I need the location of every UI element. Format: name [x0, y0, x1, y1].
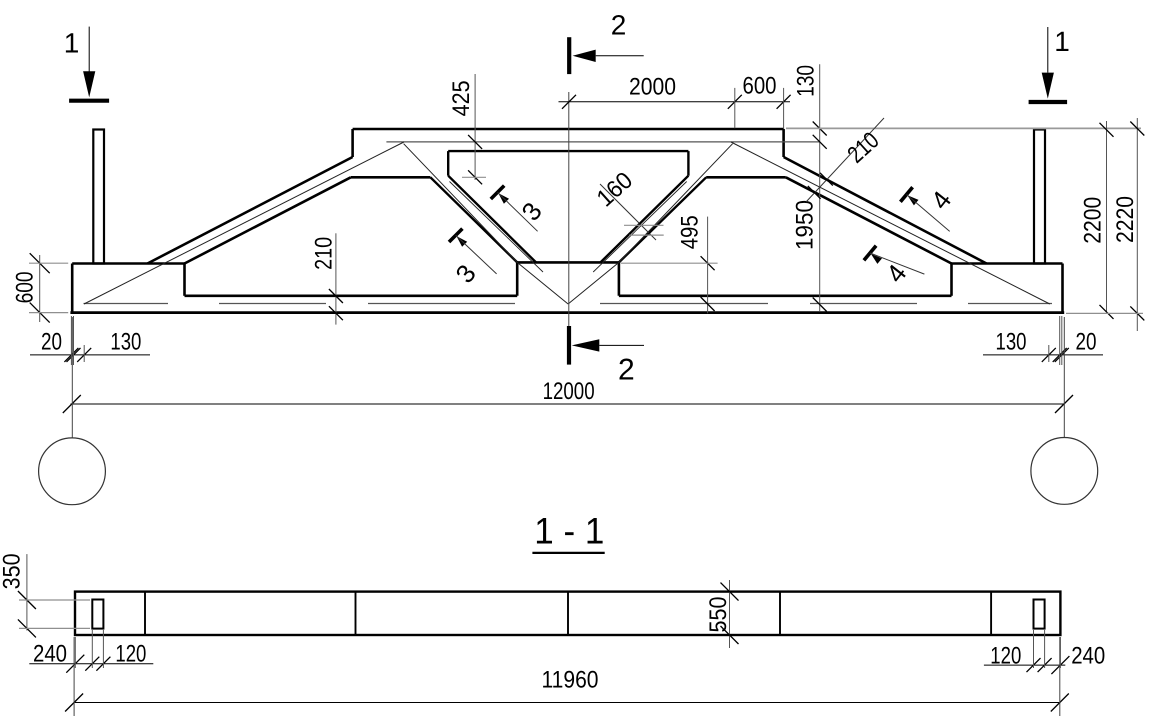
svg-text:550: 550	[705, 597, 732, 633]
svg-text:2000: 2000	[629, 74, 676, 101]
svg-text:20: 20	[1076, 329, 1097, 356]
svg-text:495: 495	[676, 215, 703, 249]
svg-text:425: 425	[448, 80, 475, 116]
svg-text:1950: 1950	[792, 200, 819, 250]
svg-text:350: 350	[0, 553, 25, 589]
svg-text:130: 130	[996, 329, 1027, 356]
svg-text:120: 120	[990, 643, 1021, 670]
svg-text:2: 2	[611, 10, 627, 41]
svg-text:20: 20	[41, 329, 62, 356]
svg-text:210: 210	[311, 237, 338, 270]
svg-text:130: 130	[792, 65, 819, 97]
svg-text:120: 120	[115, 641, 146, 668]
svg-text:12000: 12000	[543, 378, 595, 405]
svg-text:600: 600	[743, 73, 777, 100]
svg-text:130: 130	[110, 329, 141, 356]
svg-text:240: 240	[33, 641, 67, 668]
svg-text:1: 1	[64, 28, 80, 59]
svg-text:1: 1	[1054, 26, 1070, 57]
svg-text:240: 240	[1071, 643, 1105, 670]
svg-text:2220: 2220	[1112, 196, 1139, 243]
svg-text:11960: 11960	[542, 667, 599, 694]
svg-text:600: 600	[12, 271, 39, 303]
svg-text:2200: 2200	[1080, 197, 1107, 244]
svg-text:1 - 1: 1 - 1	[534, 510, 604, 551]
svg-text:2: 2	[618, 354, 635, 387]
